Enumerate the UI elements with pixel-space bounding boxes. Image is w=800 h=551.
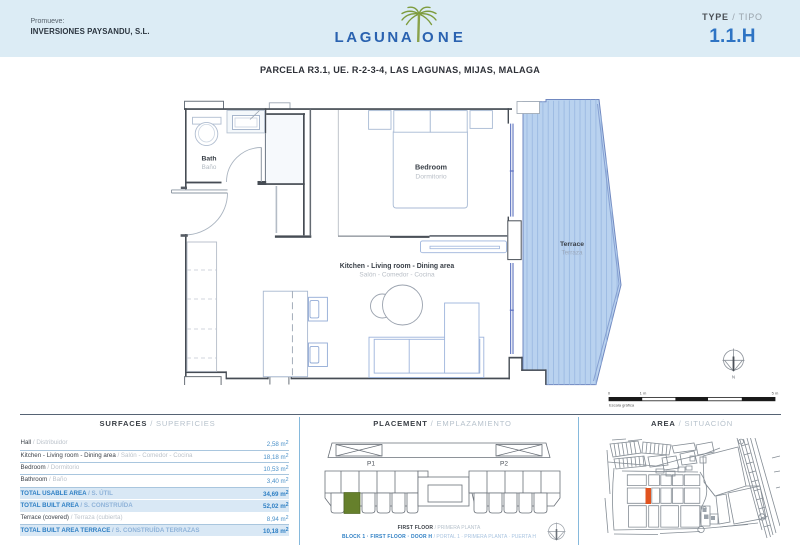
- svg-text:Dormitorio: Dormitorio: [415, 173, 447, 180]
- svg-text:P2: P2: [500, 461, 508, 468]
- svg-text:Kitchen - Living room - Dining: Kitchen - Living room - Dining area: [340, 263, 455, 270]
- svg-text:Terrace: Terrace: [560, 241, 584, 248]
- svg-text:Bath: Bath: [201, 156, 216, 163]
- svg-text:Escala gráfica: Escala gráfica: [609, 403, 635, 408]
- svg-text:N: N: [732, 375, 735, 380]
- svg-text:Terraza: Terraza: [562, 250, 583, 257]
- svg-text:P1: P1: [367, 461, 375, 468]
- svg-text:Salón - Comedor - Cocina: Salón - Comedor - Cocina: [359, 272, 435, 279]
- svg-text:5 m: 5 m: [772, 391, 779, 396]
- svg-text:0: 0: [608, 391, 611, 396]
- svg-text:1 m: 1 m: [640, 391, 647, 396]
- svg-text:Bedroom: Bedroom: [415, 162, 448, 171]
- svg-text:Baño: Baño: [202, 164, 217, 171]
